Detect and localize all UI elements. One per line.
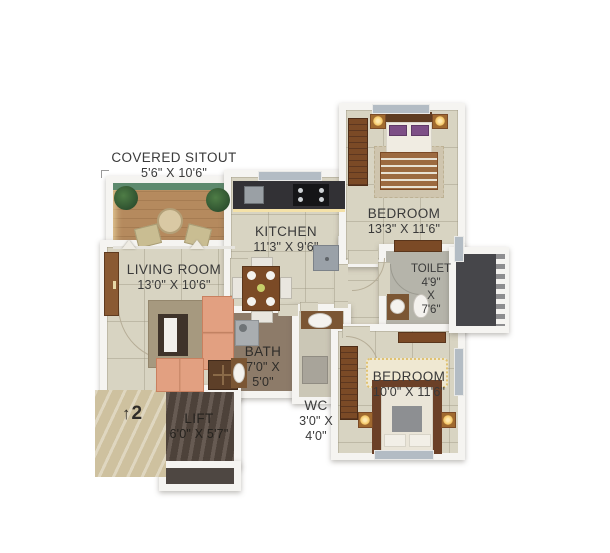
lamp-icon (373, 116, 383, 126)
unit-number: 2 (132, 404, 143, 423)
bath-label: BATH 7'0" X 5'0" (245, 344, 282, 389)
living-room-label: LIVING ROOM 13'0" X 10'6" (127, 262, 221, 293)
bedroom-top-label: BEDROOM 13'3" X 11'6" (368, 206, 441, 237)
room-name: COVERED SITOUT (111, 150, 236, 166)
kitchen-sink-icon (244, 186, 264, 204)
bedroom-bottom-window (374, 450, 434, 460)
kitchen-counter (233, 181, 345, 209)
room-dims: 5'6" X 10'6" (111, 166, 236, 181)
bedroom-bottom-label: BEDROOM 10'0" X 11'6" (373, 369, 446, 400)
pillow (409, 434, 431, 447)
room-name: BATH (245, 344, 282, 360)
unit-marker: ↑ 2 (122, 404, 142, 423)
room-name: WC (299, 398, 333, 414)
lift-label: LIFT 6'0" X 5'7" (170, 411, 229, 442)
dimension-tick (101, 170, 109, 171)
room-dims: 13'0" X 10'6" (127, 278, 221, 293)
bed-foot-blanket (380, 152, 438, 190)
dimension-tick (101, 170, 102, 178)
wardrobe (348, 118, 368, 186)
pillow (411, 125, 429, 136)
bedroom-top-window (372, 104, 430, 114)
room-dims: 7'6" (411, 304, 451, 318)
coffee-table-top (164, 318, 177, 352)
bedroom-top-side-window (454, 236, 464, 262)
up-arrow-icon: ↑ (122, 405, 131, 422)
bedroom-bottom-side-window (454, 348, 464, 396)
room-name: BEDROOM (368, 206, 441, 222)
room-name: LIVING ROOM (127, 262, 221, 278)
sliding-door-leaf-icon (190, 240, 204, 249)
sofa (202, 296, 234, 370)
patio-table (157, 208, 183, 234)
room-dims: 13'3" X 11'6" (368, 222, 441, 237)
toilet-label: TOILET 4'9" X 7'6" (411, 263, 451, 317)
room-dims: 7'0" X (245, 360, 282, 375)
lift-below-floor (166, 468, 234, 484)
coffee-table (158, 314, 188, 356)
armchair (156, 358, 204, 392)
room-dims: X (411, 290, 451, 304)
washbasin-icon (233, 363, 245, 383)
room-dims: 11'3" X 9'6" (253, 240, 318, 255)
lamp-icon (360, 415, 370, 425)
duct-ladder-icon (496, 254, 505, 326)
main-door (104, 252, 119, 316)
dresser (398, 332, 446, 343)
lamp-icon (435, 116, 445, 126)
dining-table (242, 266, 280, 311)
plant-icon (114, 186, 138, 210)
room-dims: 6'0" X 5'7" (170, 427, 229, 442)
room-name: LIFT (170, 411, 229, 427)
toilet-seat-icon (308, 313, 332, 328)
toilet-basin-counter (387, 294, 409, 320)
dining-chair (280, 277, 292, 299)
room-dims: 4'0" (299, 429, 333, 444)
door-handle-icon (113, 281, 116, 289)
wardrobe (340, 346, 358, 420)
covered-sitout-label: COVERED SITOUT 5'6" X 10'6" (111, 150, 236, 181)
wc-platform (301, 311, 343, 329)
wc-label: WC 3'0" X 4'0" (299, 398, 333, 443)
sliding-door-leaf-icon (122, 240, 136, 249)
lamp-icon (443, 415, 453, 425)
pillow (389, 125, 407, 136)
shower-area-icon (235, 320, 259, 346)
room-dims: 5'0" (245, 375, 282, 390)
room-name: BEDROOM (373, 369, 446, 385)
room-dims: 4'9" (411, 277, 451, 291)
room-name: TOILET (411, 263, 451, 277)
duct-shaft (456, 254, 496, 326)
bed-blanket (392, 406, 422, 432)
pillow (384, 434, 406, 447)
kitchen-label: KITCHEN 11'3" X 9'6" (253, 224, 318, 255)
wc-shower-mat (302, 356, 328, 384)
kitchen-window (258, 171, 322, 181)
opening-bath-door (278, 304, 298, 316)
floor-plan: COVERED SITOUT 5'6" X 10'6" LIVING ROOM … (0, 0, 610, 553)
bench (394, 240, 442, 252)
room-dims: 10'0" X 11'6" (373, 385, 446, 400)
lift-shaft-below (159, 461, 241, 491)
room-dims: 3'0" X (299, 414, 333, 429)
room-name: KITCHEN (253, 224, 318, 240)
washbasin-icon (390, 299, 405, 314)
plant-icon (206, 188, 230, 212)
under-counter-light (233, 209, 345, 212)
stove-icon (293, 184, 329, 206)
